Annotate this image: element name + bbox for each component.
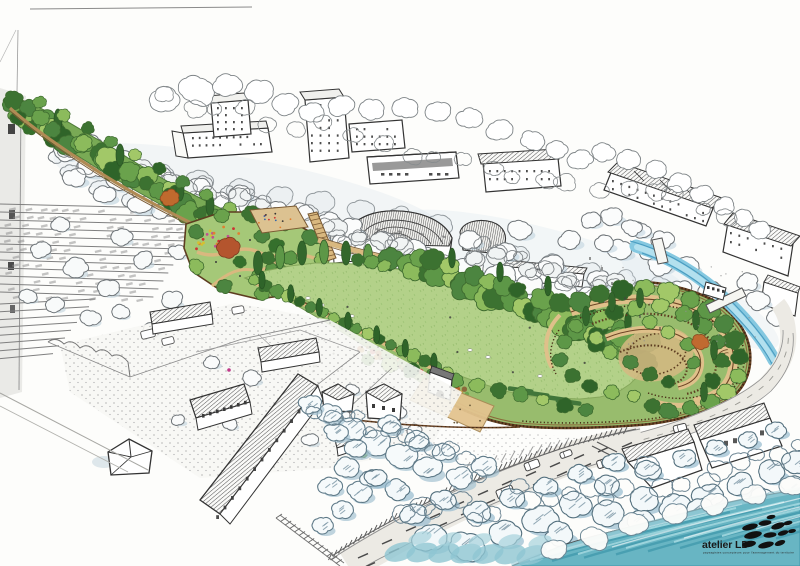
svg-text:paysagistes concepteurs pour l: paysagistes concepteurs pour l'amenageme… <box>703 551 794 555</box>
